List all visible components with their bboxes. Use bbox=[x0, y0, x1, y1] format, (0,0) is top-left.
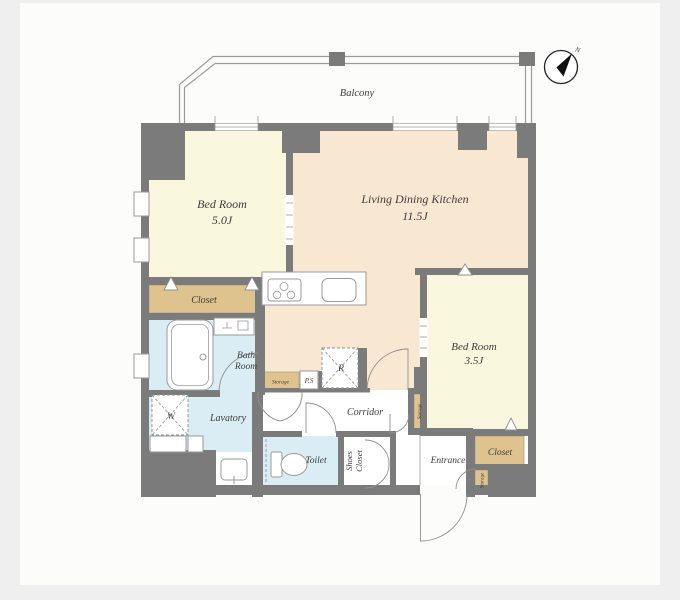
bathroom-label-2: Room bbox=[234, 362, 257, 372]
corridor-label: Corridor bbox=[347, 407, 383, 418]
closet-right-label: Closet bbox=[488, 448, 513, 458]
sink-icon bbox=[322, 279, 356, 302]
floorplan-drawing: N bbox=[0, 0, 680, 600]
entrance-main-door bbox=[421, 494, 468, 541]
bedroom1-label: Bed Room bbox=[197, 197, 247, 211]
wall-bedroom2-top bbox=[415, 268, 536, 275]
bathroom-label-1: Bath bbox=[237, 351, 255, 361]
wall-chunk-b bbox=[458, 123, 487, 150]
lavatory-cabinet-a bbox=[150, 436, 186, 452]
wall-chunk-topright bbox=[517, 123, 536, 158]
balcony-post-left bbox=[329, 52, 345, 66]
wall-r-right bbox=[358, 348, 367, 390]
toilet-label: Toilet bbox=[305, 456, 327, 466]
corridor-floor-lower bbox=[396, 435, 414, 485]
fridge-label: R bbox=[337, 364, 344, 374]
storage-entrance-label: Storage bbox=[481, 472, 486, 488]
sliding-door-bedroom2 bbox=[420, 318, 428, 357]
toilet-tank-icon bbox=[271, 452, 282, 477]
storage-kitchen-label: Storage bbox=[272, 380, 290, 386]
window-bathroom bbox=[134, 354, 149, 378]
closet-left-label: Closet bbox=[191, 295, 217, 306]
lavatory-cabinet-b bbox=[188, 436, 203, 452]
shoes-closet-label-1: Shoes bbox=[344, 450, 354, 471]
window-bedroom1-a bbox=[134, 192, 149, 216]
compass-north-label: N bbox=[573, 45, 581, 54]
bedroom2-label: Bed Room bbox=[451, 341, 497, 353]
bath-vanity bbox=[214, 318, 254, 335]
wall-corridor-bottom-a bbox=[255, 431, 302, 437]
wall-shoes-right bbox=[390, 436, 396, 487]
bedroom1-size: 5.0J bbox=[212, 213, 233, 227]
wall-chunk-bottomright bbox=[488, 464, 536, 497]
wall-closet-right-left bbox=[466, 429, 475, 497]
balcony-post-right bbox=[519, 52, 535, 66]
wall-closet-right-bottom bbox=[475, 464, 493, 470]
sliding-door-bedroom1 bbox=[286, 195, 294, 245]
ldk-label: Living Dining Kitchen bbox=[360, 192, 468, 206]
storage-hall-label: Storage bbox=[418, 403, 423, 419]
wall-corridor-bottom-b bbox=[336, 431, 396, 437]
window-bedroom1-b bbox=[134, 238, 149, 262]
wall-right bbox=[528, 123, 536, 497]
toilet-bowl-icon bbox=[281, 454, 307, 476]
lavatory-label: Lavatory bbox=[209, 413, 247, 424]
shoes-closet-label-2: Closet bbox=[354, 450, 364, 472]
balcony-label: Balcony bbox=[340, 88, 375, 99]
corridor-floor bbox=[261, 390, 414, 435]
wall-corridor-right bbox=[408, 388, 414, 435]
bedroom2-size: 3.5J bbox=[464, 355, 485, 367]
window-top-3 bbox=[489, 116, 516, 131]
ldk-size: 11.5J bbox=[402, 209, 428, 223]
wall-chunk-bottomleft bbox=[141, 450, 216, 497]
kitchen-counter bbox=[262, 272, 366, 305]
window-top-1 bbox=[215, 116, 258, 131]
wall-chunk-topleft bbox=[141, 123, 185, 180]
bathtub bbox=[167, 320, 213, 390]
washbasin bbox=[221, 459, 247, 484]
window-top-2 bbox=[393, 116, 457, 131]
ps-label: P.S bbox=[304, 377, 314, 385]
entrance-label: Entrance bbox=[430, 456, 466, 466]
washer-label: W bbox=[167, 412, 176, 422]
floorplan-page: N bbox=[0, 0, 680, 600]
compass: N bbox=[545, 45, 582, 83]
